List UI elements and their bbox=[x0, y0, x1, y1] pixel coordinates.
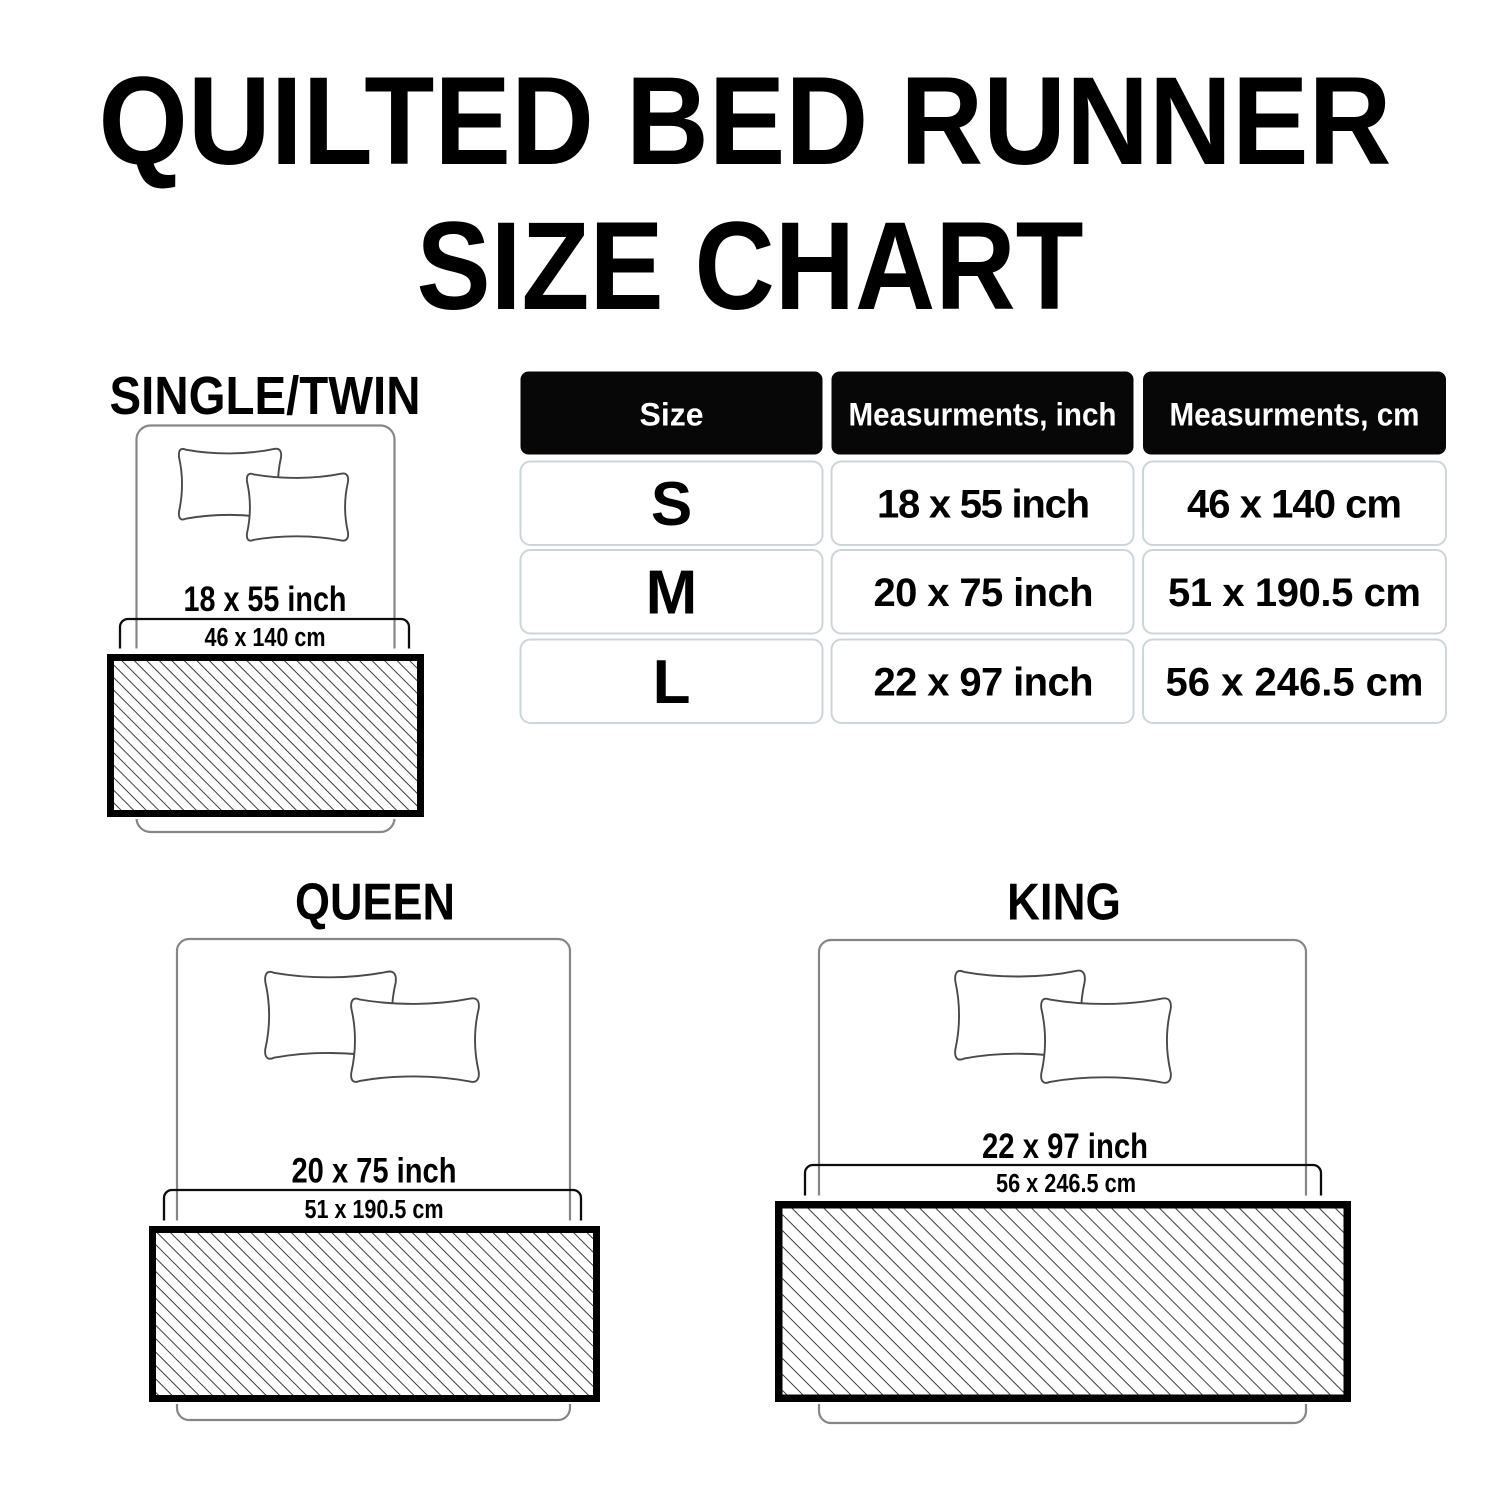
svg-text:L: L bbox=[653, 648, 691, 717]
svg-text:Measurments, inch: Measurments, inch bbox=[849, 397, 1117, 433]
svg-text:QUILTED BED RUNNER: QUILTED BED RUNNER bbox=[99, 52, 1392, 191]
svg-text:22 x 97 inch: 22 x 97 inch bbox=[982, 1126, 1148, 1166]
svg-text:Size: Size bbox=[639, 397, 703, 433]
svg-text:51 x 190.5 cm: 51 x 190.5 cm bbox=[305, 1196, 444, 1224]
svg-text:KING: KING bbox=[1007, 874, 1121, 932]
svg-text:51 x 190.5 cm: 51 x 190.5 cm bbox=[1168, 571, 1421, 615]
svg-text:56 x 246.5 cm: 56 x 246.5 cm bbox=[996, 1170, 1136, 1198]
svg-text:18 x 55 inch: 18 x 55 inch bbox=[184, 579, 347, 619]
svg-text:46 x 140 cm: 46 x 140 cm bbox=[1187, 483, 1402, 527]
svg-text:18 x 55 inch: 18 x 55 inch bbox=[877, 483, 1090, 527]
svg-text:20 x 75 inch: 20 x 75 inch bbox=[874, 571, 1094, 615]
svg-text:Measurments, cm: Measurments, cm bbox=[1170, 397, 1420, 433]
svg-text:M: M bbox=[646, 559, 698, 628]
svg-text:20 x 75 inch: 20 x 75 inch bbox=[292, 1151, 457, 1191]
svg-text:S: S bbox=[651, 470, 692, 539]
svg-text:SIZE CHART: SIZE CHART bbox=[417, 197, 1084, 336]
svg-text:56 x 246.5 cm: 56 x 246.5 cm bbox=[1166, 661, 1424, 705]
svg-text:QUEEN: QUEEN bbox=[295, 874, 455, 932]
svg-text:SINGLE/TWIN: SINGLE/TWIN bbox=[110, 366, 421, 426]
svg-text:46 x 140 cm: 46 x 140 cm bbox=[205, 624, 326, 652]
svg-text:22 x 97 inch: 22 x 97 inch bbox=[874, 661, 1094, 705]
